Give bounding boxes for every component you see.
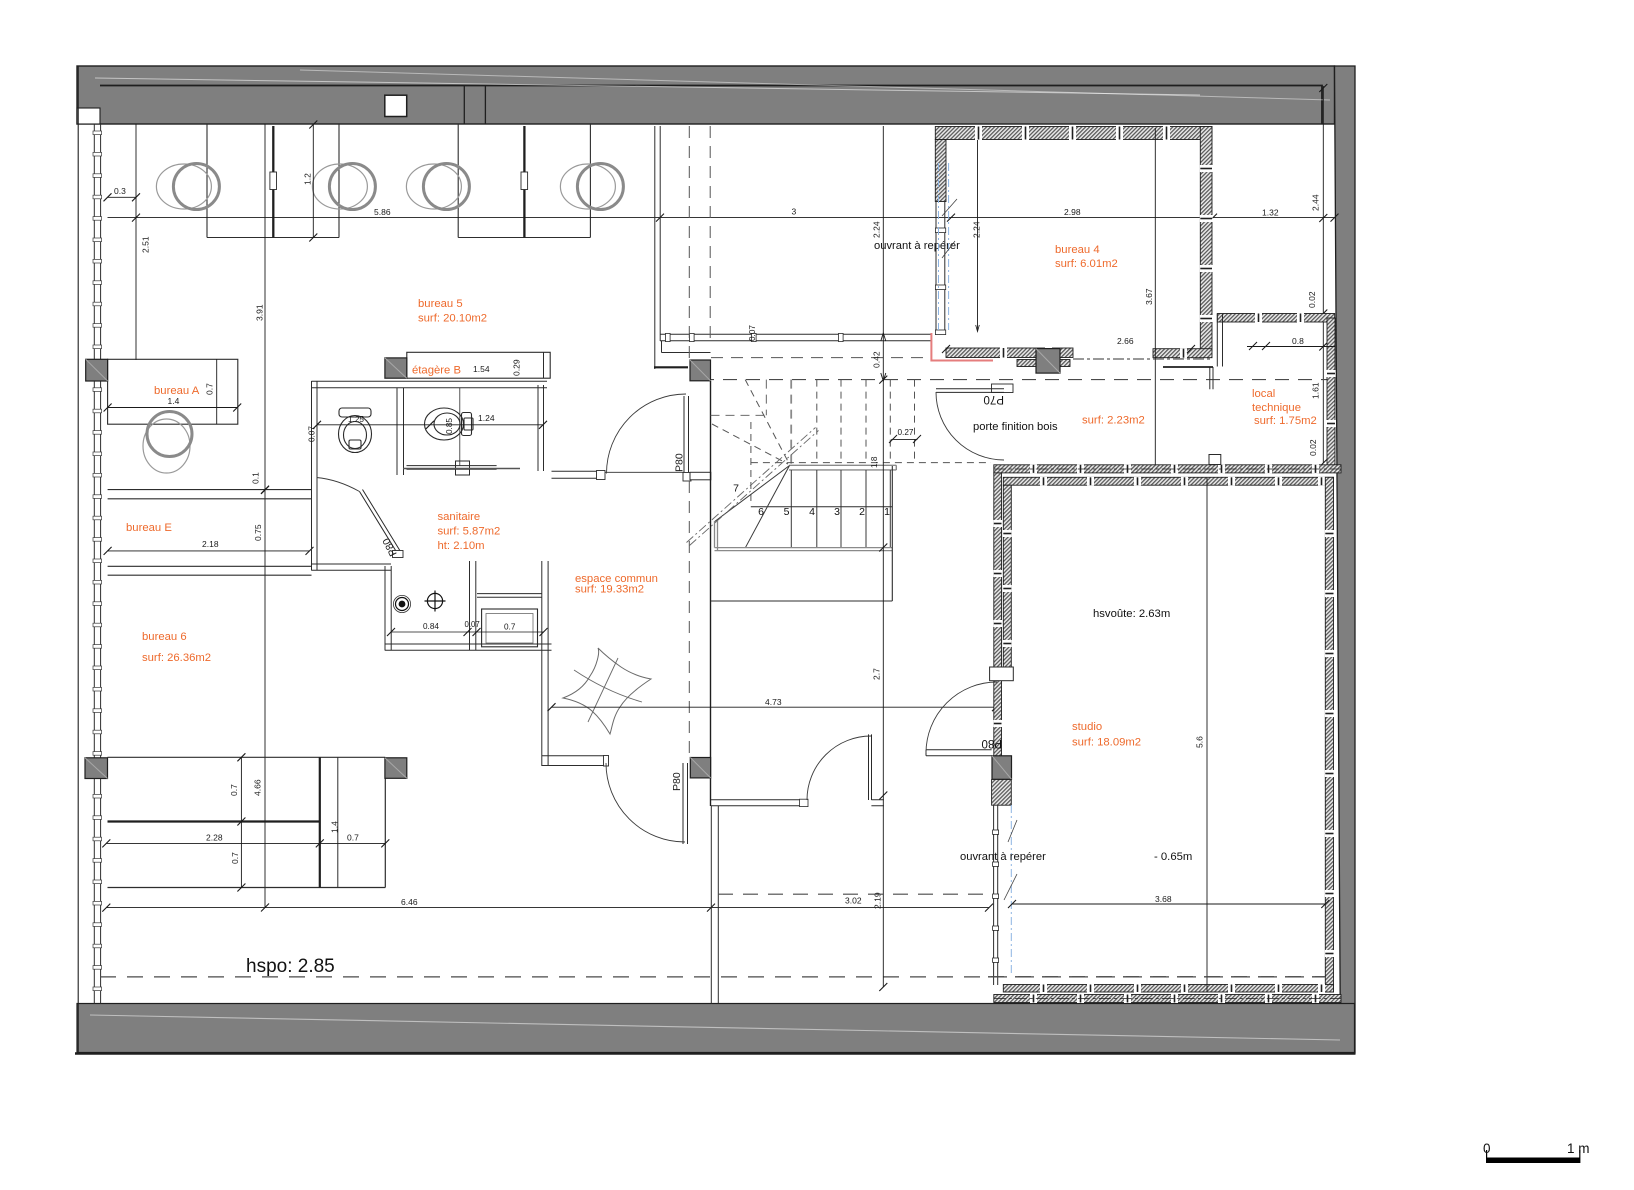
svg-text:0: 0 [1483,1141,1491,1156]
svg-text:étagère B: étagère B [412,365,461,377]
svg-text:surf: 5.87m2: surf: 5.87m2 [438,526,501,538]
svg-text:1.2: 1.2 [303,173,313,185]
svg-text:studio: studio [1072,721,1102,733]
svg-text:1.25: 1.25 [348,415,364,424]
svg-text:2.18: 2.18 [202,539,219,549]
svg-text:4.73: 4.73 [765,697,782,707]
svg-text:0.02: 0.02 [1308,439,1318,456]
svg-text:1.54: 1.54 [473,364,490,374]
svg-text:2.7: 2.7 [872,668,882,680]
svg-text:ouvrant à repérer: ouvrant à repérer [960,851,1046,863]
svg-text:ouvrant à repérer: ouvrant à repérer [874,240,960,252]
svg-text:2.24: 2.24 [972,221,982,238]
svg-text:P80: P80 [674,453,686,472]
svg-text:1.32: 1.32 [1262,208,1279,218]
svg-text:6: 6 [758,506,764,518]
svg-text:surf: 26.36m2: surf: 26.36m2 [142,652,211,664]
svg-text:0.7: 0.7 [504,623,516,632]
svg-text:0.7: 0.7 [229,784,239,796]
svg-text:1.24: 1.24 [478,413,495,423]
svg-text:1.4: 1.4 [330,821,340,833]
svg-text:0.07: 0.07 [748,325,757,341]
svg-text:surf: 2.23m2: surf: 2.23m2 [1082,415,1145,427]
svg-text:1.4: 1.4 [168,396,180,406]
svg-text:bureau E: bureau E [126,522,172,534]
svg-text:5: 5 [784,506,790,518]
svg-text:hspo: 2.85: hspo: 2.85 [246,956,335,977]
svg-text:0.02: 0.02 [1307,291,1317,308]
svg-text:2.24: 2.24 [872,221,882,238]
svg-text:2.28: 2.28 [206,833,223,843]
svg-text:sanitaire: sanitaire [438,511,481,523]
svg-text:bureau 4: bureau 4 [1055,244,1100,256]
svg-text:bureau A: bureau A [154,385,200,397]
svg-text:1 m: 1 m [1567,1141,1590,1156]
svg-text:ht: 2.10m: ht: 2.10m [438,540,485,552]
svg-text:local: local [1252,388,1275,400]
svg-text:P80: P80 [982,737,1002,749]
svg-text:2.98: 2.98 [1064,207,1081,217]
svg-text:surf: 6.01m2: surf: 6.01m2 [1055,258,1118,270]
svg-text:bureau 5: bureau 5 [418,298,463,310]
svg-text:2: 2 [859,506,865,518]
svg-text:6.46: 6.46 [401,897,418,907]
svg-text:technique: technique [1252,402,1301,414]
svg-text:surf: 20.10m2: surf: 20.10m2 [418,313,487,325]
svg-text:5.6: 5.6 [1195,736,1205,748]
svg-text:2.44: 2.44 [1311,194,1321,211]
svg-text:3.68: 3.68 [1155,894,1172,904]
svg-text:1: 1 [884,506,890,518]
svg-text:0.07: 0.07 [465,620,480,629]
svg-text:surf: 18.09m2: surf: 18.09m2 [1072,737,1141,749]
svg-text:surf: 19.33m2: surf: 19.33m2 [575,584,644,596]
svg-text:bureau 6: bureau 6 [142,631,187,643]
svg-text:3.67: 3.67 [1144,288,1154,305]
svg-text:0.07: 0.07 [308,426,317,442]
svg-text:3.91: 3.91 [255,304,265,321]
svg-text:0.1: 0.1 [251,472,261,484]
svg-text:0.42: 0.42 [872,351,882,368]
svg-text:0.3: 0.3 [114,186,126,196]
svg-text:2.51: 2.51 [141,236,151,253]
svg-text:0.29: 0.29 [512,359,522,376]
svg-text:3: 3 [834,506,840,518]
svg-text:3.02: 3.02 [845,896,862,906]
svg-text:0.85: 0.85 [445,418,454,434]
svg-text:4.66: 4.66 [253,779,263,796]
svg-text:3: 3 [792,207,797,217]
svg-text:0.75: 0.75 [253,524,263,541]
svg-text:0.7: 0.7 [230,852,240,864]
svg-text:0.27: 0.27 [898,428,914,437]
svg-text:1.61: 1.61 [1310,382,1320,399]
svg-text:1.8: 1.8 [870,456,879,468]
svg-text:0.8: 0.8 [1292,336,1304,346]
svg-text:2.66: 2.66 [1117,336,1134,346]
svg-text:0.84: 0.84 [423,622,439,631]
svg-text:0.7: 0.7 [205,383,215,395]
svg-text:4: 4 [809,506,815,518]
svg-text:P80: P80 [671,772,683,791]
svg-text:porte finition bois: porte finition bois [973,421,1058,433]
svg-text:- 0.65m: - 0.65m [1154,851,1192,863]
svg-text:5.86: 5.86 [374,207,391,217]
svg-text:surf: 1.75m2: surf: 1.75m2 [1254,415,1317,427]
svg-text:hsvoûte: 2.63m: hsvoûte: 2.63m [1093,608,1170,620]
svg-text:7: 7 [733,483,739,495]
svg-text:P70: P70 [984,393,1004,405]
svg-text:0.7: 0.7 [347,833,359,843]
